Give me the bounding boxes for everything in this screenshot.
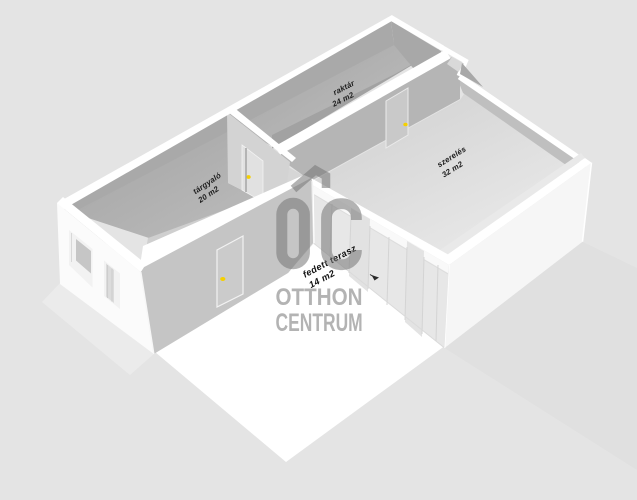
svg-text:OTTHON: OTTHON <box>276 284 363 311</box>
svg-text:CENTRUM: CENTRUM <box>276 309 363 337</box>
